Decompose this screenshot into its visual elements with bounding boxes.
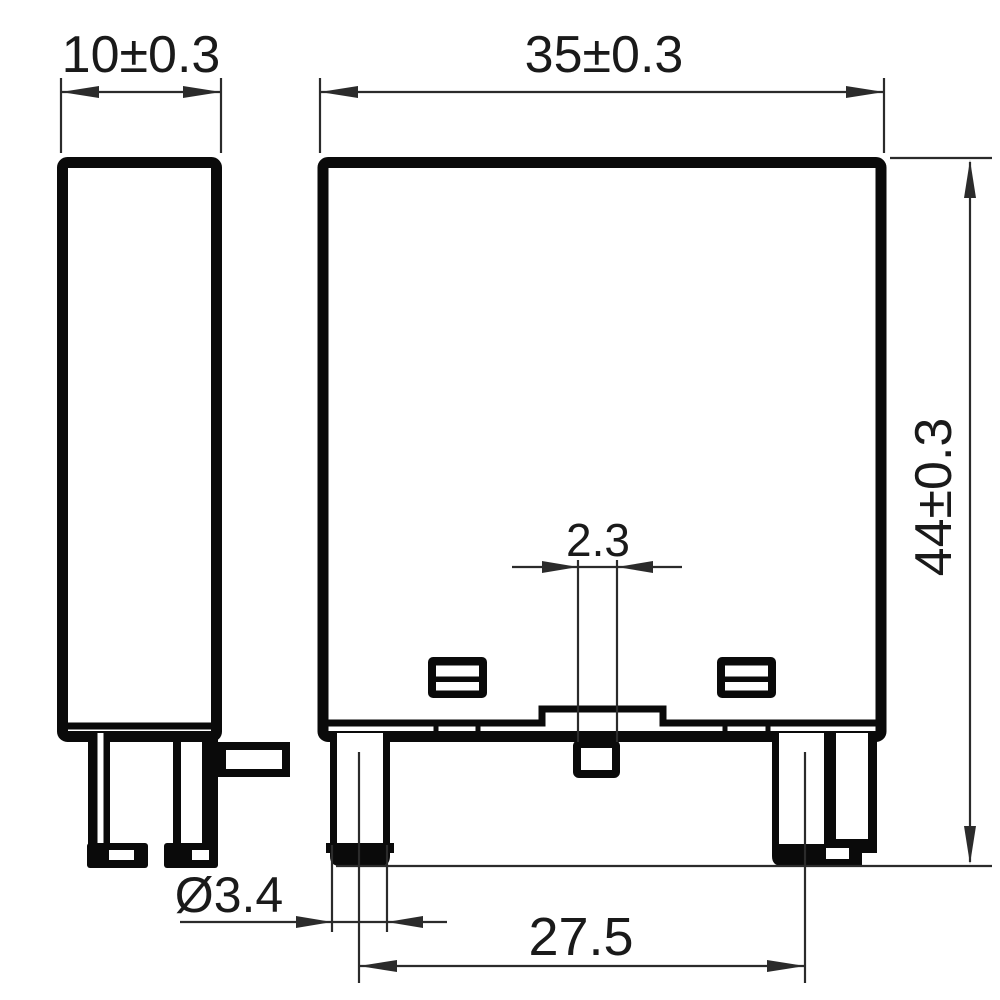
dim-center-pin-text: 2.3 xyxy=(566,514,630,566)
arrow-down-icon xyxy=(964,826,976,864)
dim-side-width: 10±0.3 xyxy=(61,26,221,153)
front-view-right-slot xyxy=(717,657,776,698)
dim-side-width-text: 10±0.3 xyxy=(62,26,221,84)
arrow-up-icon xyxy=(964,160,976,198)
arrow-right-icon xyxy=(767,960,805,972)
dim-pin-pitch: 27.5 xyxy=(359,752,805,983)
side-view xyxy=(62,163,286,869)
dimension-drawing-svg: 10±0.3 35±0.3 44±0.3 2.3 xyxy=(0,0,1000,1000)
arrow-left-icon xyxy=(359,960,397,972)
dim-pin-pitch-text: 27.5 xyxy=(528,907,633,967)
arrow-left-icon xyxy=(61,86,99,98)
arrow-right-icon xyxy=(183,86,221,98)
side-view-body-outline xyxy=(63,163,217,737)
front-view-left-slot xyxy=(428,657,487,698)
arrow-right-icon xyxy=(846,86,884,98)
side-view-latch-tab xyxy=(222,746,286,773)
front-view-right-pin xyxy=(772,733,878,867)
arrow-left-icon xyxy=(320,86,358,98)
front-view-center-pin xyxy=(577,744,616,774)
technical-drawing-canvas: 10±0.3 35±0.3 44±0.3 2.3 xyxy=(0,0,1000,1000)
side-view-pins xyxy=(87,733,218,868)
dim-pin-diameter-text: Ø3.4 xyxy=(175,867,283,923)
dim-front-width-text: 35±0.3 xyxy=(525,26,684,84)
dim-overall-height-text: 44±0.3 xyxy=(905,418,963,577)
arrow-left-icon xyxy=(387,916,423,928)
dim-front-width: 35±0.3 xyxy=(320,26,884,153)
arrow-right-icon xyxy=(296,916,332,928)
front-view-body-outline xyxy=(323,163,881,737)
